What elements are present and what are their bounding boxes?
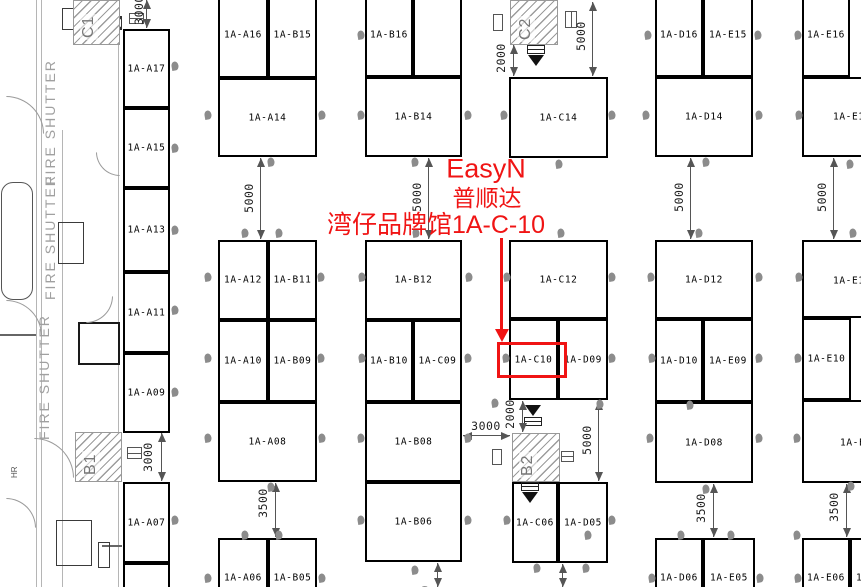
dimension-line [598, 401, 599, 481]
utility-marker-icon [608, 353, 616, 363]
fire-shutter-label: FIRE SHUTTER [36, 314, 52, 440]
speaker-box-icon [521, 482, 539, 491]
dim-arrow-icon [843, 528, 851, 537]
utility-marker-icon [465, 272, 473, 282]
utility-marker-icon [204, 573, 212, 583]
utility-marker-icon [755, 353, 763, 363]
dim-arrow-icon [589, 67, 597, 76]
dim-arrow-icon [595, 472, 603, 481]
dimension-label: 3500 [827, 492, 841, 522]
dim-arrow-icon [434, 563, 442, 572]
utility-marker-icon [275, 228, 283, 238]
dimension-label: 3000 [132, 0, 146, 25]
highlight-rectangle [497, 342, 567, 378]
dim-arrow-icon [687, 158, 695, 167]
booth-label: 1A-A11 [128, 307, 166, 318]
dim-arrow-icon [687, 230, 695, 239]
utility-marker-icon [642, 110, 650, 120]
utility-marker-icon [647, 272, 655, 282]
dim-arrow-icon [559, 578, 567, 587]
booth-label: 1A-B14 [395, 112, 433, 123]
dimension-line [592, 2, 593, 76]
utility-marker-icon [794, 353, 802, 363]
booth-label: 1A-B06 [395, 517, 433, 528]
dim-arrow-icon [257, 158, 265, 167]
utility-marker-icon [318, 110, 326, 120]
table-icon [561, 451, 574, 462]
dim-arrow-icon [501, 432, 510, 440]
utility-marker-icon [357, 30, 365, 40]
utility-marker-icon [171, 515, 179, 525]
utility-marker-icon [464, 110, 472, 120]
service-room-label: B2 [519, 452, 537, 478]
booth-label: 1A-A16 [224, 30, 262, 41]
dim-arrow-icon [434, 578, 442, 587]
utility-marker-icon [702, 157, 710, 167]
service-room-label: C2 [517, 16, 535, 42]
utility-marker-icon [756, 573, 764, 583]
booth-label: 1A-B08 [395, 437, 433, 448]
utility-marker-icon [464, 353, 472, 363]
annotation-arrowhead-icon [495, 329, 509, 342]
speaker-box-icon [527, 45, 545, 54]
booth-label: 1A-D14 [685, 112, 723, 123]
dimension-line [260, 158, 261, 239]
booth-label: 1A-D06 [660, 573, 698, 584]
utility-marker-icon [794, 573, 802, 583]
dimension-label: 3000 [471, 419, 501, 433]
booth-label: 1A-A06 [224, 573, 262, 584]
booth [123, 563, 170, 587]
service-room-label: B1 [82, 451, 100, 477]
booth-label: 1A-D05 [564, 517, 602, 528]
wall-line [62, 130, 63, 587]
dim-arrow-icon [589, 2, 597, 11]
highlight-annotation-line3: 湾仔品牌馆1A-C-10 [327, 205, 545, 241]
booth-label: 1A-C14 [540, 112, 578, 123]
sign-icon [493, 14, 503, 31]
booth-label: 1A-C12 [540, 274, 578, 285]
utility-marker-icon [171, 225, 179, 235]
booth-label: 1A-B05 [274, 573, 312, 584]
booth-label: 1A-A14 [249, 112, 287, 123]
utility-marker-icon [204, 353, 212, 363]
utility-marker-icon [411, 565, 419, 575]
booth-label: 1A-E1 [833, 276, 861, 287]
speaker-triangle-icon [525, 405, 541, 416]
utility-marker-icon [793, 530, 801, 540]
booth-label: 1A-E10 [808, 354, 846, 365]
utility-marker-icon [317, 272, 325, 282]
speaker-triangle-icon [522, 492, 538, 503]
floor-plan: C1C2B1B21A-A171A-A151A-A131A-A111A-A091A… [0, 0, 861, 587]
fire-shutter-label: FIRE SHUTTER [42, 59, 58, 185]
booth-label: 1A-C09 [419, 356, 457, 367]
booth-label: 1A-D08 [685, 437, 723, 448]
booth-label: 1A-A08 [249, 437, 287, 448]
utility-marker-icon [318, 573, 326, 583]
utility-marker-icon [755, 433, 763, 443]
utility-room [78, 322, 120, 365]
dim-arrow-icon [710, 484, 718, 493]
booth-label: 1A-D09 [564, 354, 602, 365]
av-equipment-icon [524, 45, 548, 71]
utility-marker-icon [357, 515, 365, 525]
booth-label: 1A-B16 [370, 29, 408, 40]
wall-fixture [56, 520, 92, 566]
booth-label: 1A-A12 [224, 275, 262, 286]
dimension-label: 3500 [694, 493, 708, 523]
booth-label: 1A-B10 [370, 356, 408, 367]
dimension-label: 5000 [242, 183, 256, 213]
dimension-label: 2000 [503, 399, 517, 429]
utility-marker-icon [464, 515, 472, 525]
dim-arrow-icon [830, 230, 838, 239]
booth-label: 1A-A10 [224, 356, 262, 367]
dimension-label: 3500 [256, 488, 270, 518]
table-icon [127, 447, 142, 459]
dimension-label: 5000 [574, 21, 588, 51]
booth-label: 1A-B12 [395, 275, 433, 286]
utility-marker-icon [555, 159, 563, 169]
utility-marker-icon [204, 272, 212, 282]
booth-label: 1A-E0 [840, 438, 861, 449]
utility-marker-icon [318, 433, 326, 443]
fire-shutter-label: FIRE SHUTTER [42, 174, 58, 300]
dim-arrow-icon [257, 230, 265, 239]
dim-arrow-icon [425, 158, 433, 167]
booth-label: 1A-E16 [807, 29, 845, 40]
dim-arrow-icon [710, 528, 718, 537]
speaker-triangle-icon [528, 55, 544, 66]
booth-label: 1 [856, 573, 861, 584]
booth-label: 1A-A13 [128, 225, 166, 236]
utility-marker-icon [503, 515, 511, 525]
booth-label: 1A-E1 [833, 112, 861, 123]
booth-label: 1A-E05 [710, 573, 748, 584]
booth-label: 1A-B15 [274, 30, 312, 41]
utility-marker-icon [557, 228, 565, 238]
dimension-line [833, 158, 834, 239]
dim-arrow-icon [510, 45, 518, 54]
utility-marker-icon [171, 387, 179, 397]
utility-marker-icon [608, 515, 616, 525]
av-equipment-icon [518, 482, 542, 508]
stair-fixture [1, 182, 33, 300]
booth-label: 1A-E09 [709, 355, 747, 366]
sign-icon [492, 449, 502, 465]
dimension-label: 5000 [580, 425, 594, 455]
utility-marker-icon [754, 30, 762, 40]
dimension-label: 5000 [815, 182, 829, 212]
door-swing-icon [96, 152, 120, 176]
utility-marker-icon [317, 353, 325, 363]
dimension-label: 2000 [494, 43, 508, 73]
booth-label: 1A-B11 [274, 275, 312, 286]
door-swing-icon [34, 438, 74, 478]
utility-marker-icon [357, 110, 365, 120]
utility-marker-icon [793, 433, 801, 443]
booth [413, 0, 462, 77]
door-swing-icon [6, 96, 44, 134]
dim-arrow-icon [519, 401, 527, 410]
utility-marker-icon [357, 433, 365, 443]
booth-label: 1A-D12 [685, 274, 723, 285]
booth-label: 1A-D10 [660, 355, 698, 366]
utility-marker-icon [849, 228, 857, 238]
utility-marker-icon [241, 228, 249, 238]
dim-arrow-icon [158, 433, 166, 442]
booth-label: 1A-A07 [128, 517, 166, 528]
utility-marker-icon [794, 30, 802, 40]
wall-line [36, 0, 37, 587]
utility-marker-icon [500, 110, 508, 120]
service-room-label: C1 [80, 14, 98, 40]
booth-label: 1A-E06 [807, 573, 845, 584]
door-swing-icon [86, 296, 113, 323]
dimension-label: 3000 [141, 442, 155, 472]
utility-marker-icon [267, 157, 275, 167]
utility-marker-icon [646, 433, 654, 443]
utility-marker-icon [608, 272, 616, 282]
booth-label: 1A-A15 [128, 143, 166, 154]
dim-arrow-icon [519, 423, 527, 432]
dim-arrow-icon [158, 472, 166, 481]
utility-marker-icon [491, 398, 499, 408]
utility-marker-icon [171, 143, 179, 153]
booth-label: 1A-A09 [128, 388, 166, 399]
dimension-label: 5000 [672, 182, 686, 212]
utility-marker-icon [204, 110, 212, 120]
booth-label: 1A-D16 [660, 29, 698, 40]
utility-marker-icon [644, 30, 652, 40]
utility-marker-icon [846, 159, 854, 169]
utility-marker-icon [702, 484, 710, 494]
wall-fixture [98, 542, 110, 568]
utility-marker-icon [755, 272, 763, 282]
utility-marker-icon [171, 305, 179, 315]
utility-marker-icon [695, 228, 703, 238]
door-swing-icon [6, 498, 36, 528]
booth-label: 1A-E15 [709, 29, 747, 40]
dim-arrow-icon [559, 564, 567, 573]
hr-label: HR [10, 466, 19, 478]
dim-arrow-icon [510, 67, 518, 76]
utility-marker-icon [582, 563, 590, 573]
utility-marker-icon [411, 157, 419, 167]
booth-label: 1A-C06 [516, 517, 554, 528]
wall-line [118, 0, 119, 587]
booth-label: 1A-A17 [128, 63, 166, 74]
dim-arrow-icon [830, 158, 838, 167]
dimension-line [690, 158, 691, 239]
wall-fixture [58, 222, 84, 264]
utility-marker-icon [608, 110, 616, 120]
annotation-arrow [500, 238, 503, 330]
utility-marker-icon [171, 61, 179, 71]
utility-marker-icon [533, 563, 541, 573]
booth-label: 1A-B09 [274, 356, 312, 367]
utility-marker-icon [204, 433, 212, 443]
utility-marker-icon [755, 110, 763, 120]
